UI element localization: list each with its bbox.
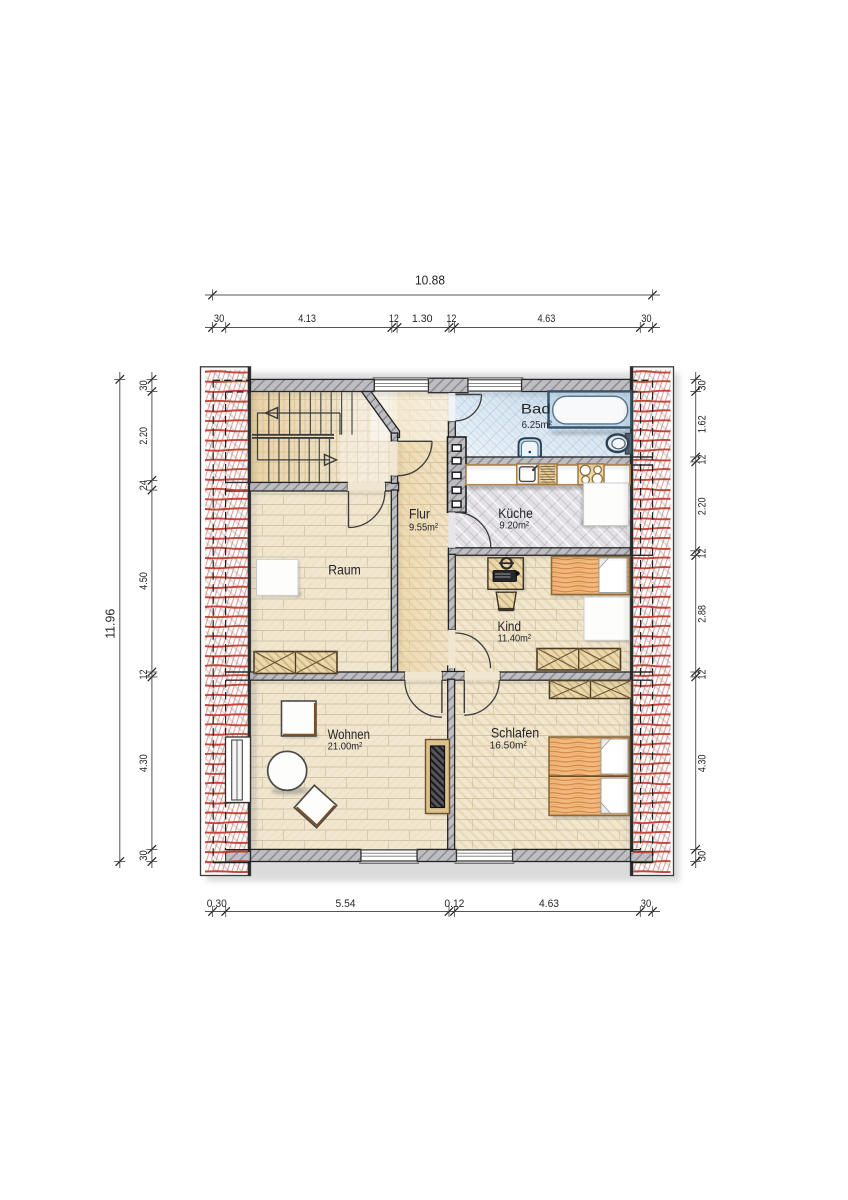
svg-text:6.25m²: 6.25m²	[522, 419, 553, 431]
svg-text:12: 12	[697, 549, 709, 559]
svg-text:9.55m²: 9.55m²	[409, 522, 438, 534]
svg-text:4.30: 4.30	[138, 754, 150, 772]
svg-text:12: 12	[697, 455, 709, 465]
svg-text:30: 30	[697, 851, 709, 861]
svg-text:30: 30	[641, 898, 651, 910]
svg-text:4.13: 4.13	[298, 313, 316, 325]
svg-text:0.30: 0.30	[207, 898, 227, 910]
svg-text:12: 12	[697, 670, 709, 680]
svg-text:30: 30	[697, 380, 709, 390]
svg-text:12: 12	[389, 313, 399, 325]
svg-text:Raum: Raum	[328, 562, 361, 578]
svg-text:11.96: 11.96	[104, 609, 118, 639]
svg-text:30: 30	[214, 313, 224, 325]
svg-text:2.88: 2.88	[697, 605, 709, 623]
svg-text:4.30: 4.30	[697, 755, 709, 773]
svg-text:1.62: 1.62	[697, 415, 709, 433]
svg-text:Flur: Flur	[409, 506, 430, 522]
svg-text:24: 24	[138, 480, 150, 490]
svg-text:12: 12	[138, 670, 150, 680]
svg-text:1.30: 1.30	[412, 313, 433, 325]
svg-text:0.12: 0.12	[444, 898, 464, 910]
svg-text:30: 30	[138, 850, 150, 860]
svg-text:Bad: Bad	[521, 400, 551, 416]
svg-text:30: 30	[641, 313, 651, 325]
svg-text:11.40m²: 11.40m²	[498, 633, 532, 645]
svg-text:4.63: 4.63	[538, 313, 556, 325]
svg-text:Schlafen: Schlafen	[491, 724, 539, 740]
svg-text:10.88: 10.88	[415, 274, 445, 288]
svg-text:12: 12	[446, 313, 456, 325]
svg-text:5.54: 5.54	[336, 898, 356, 910]
svg-text:2.20: 2.20	[138, 427, 150, 445]
svg-text:16.50m²: 16.50m²	[490, 740, 528, 752]
svg-text:30: 30	[138, 380, 150, 390]
svg-text:2.20: 2.20	[697, 497, 709, 515]
svg-text:21.00m²: 21.00m²	[328, 741, 363, 753]
svg-text:Wohnen: Wohnen	[328, 726, 370, 742]
svg-text:9.20m²: 9.20m²	[499, 520, 529, 532]
svg-text:4.50: 4.50	[138, 572, 150, 590]
svg-text:4.63: 4.63	[539, 898, 559, 910]
